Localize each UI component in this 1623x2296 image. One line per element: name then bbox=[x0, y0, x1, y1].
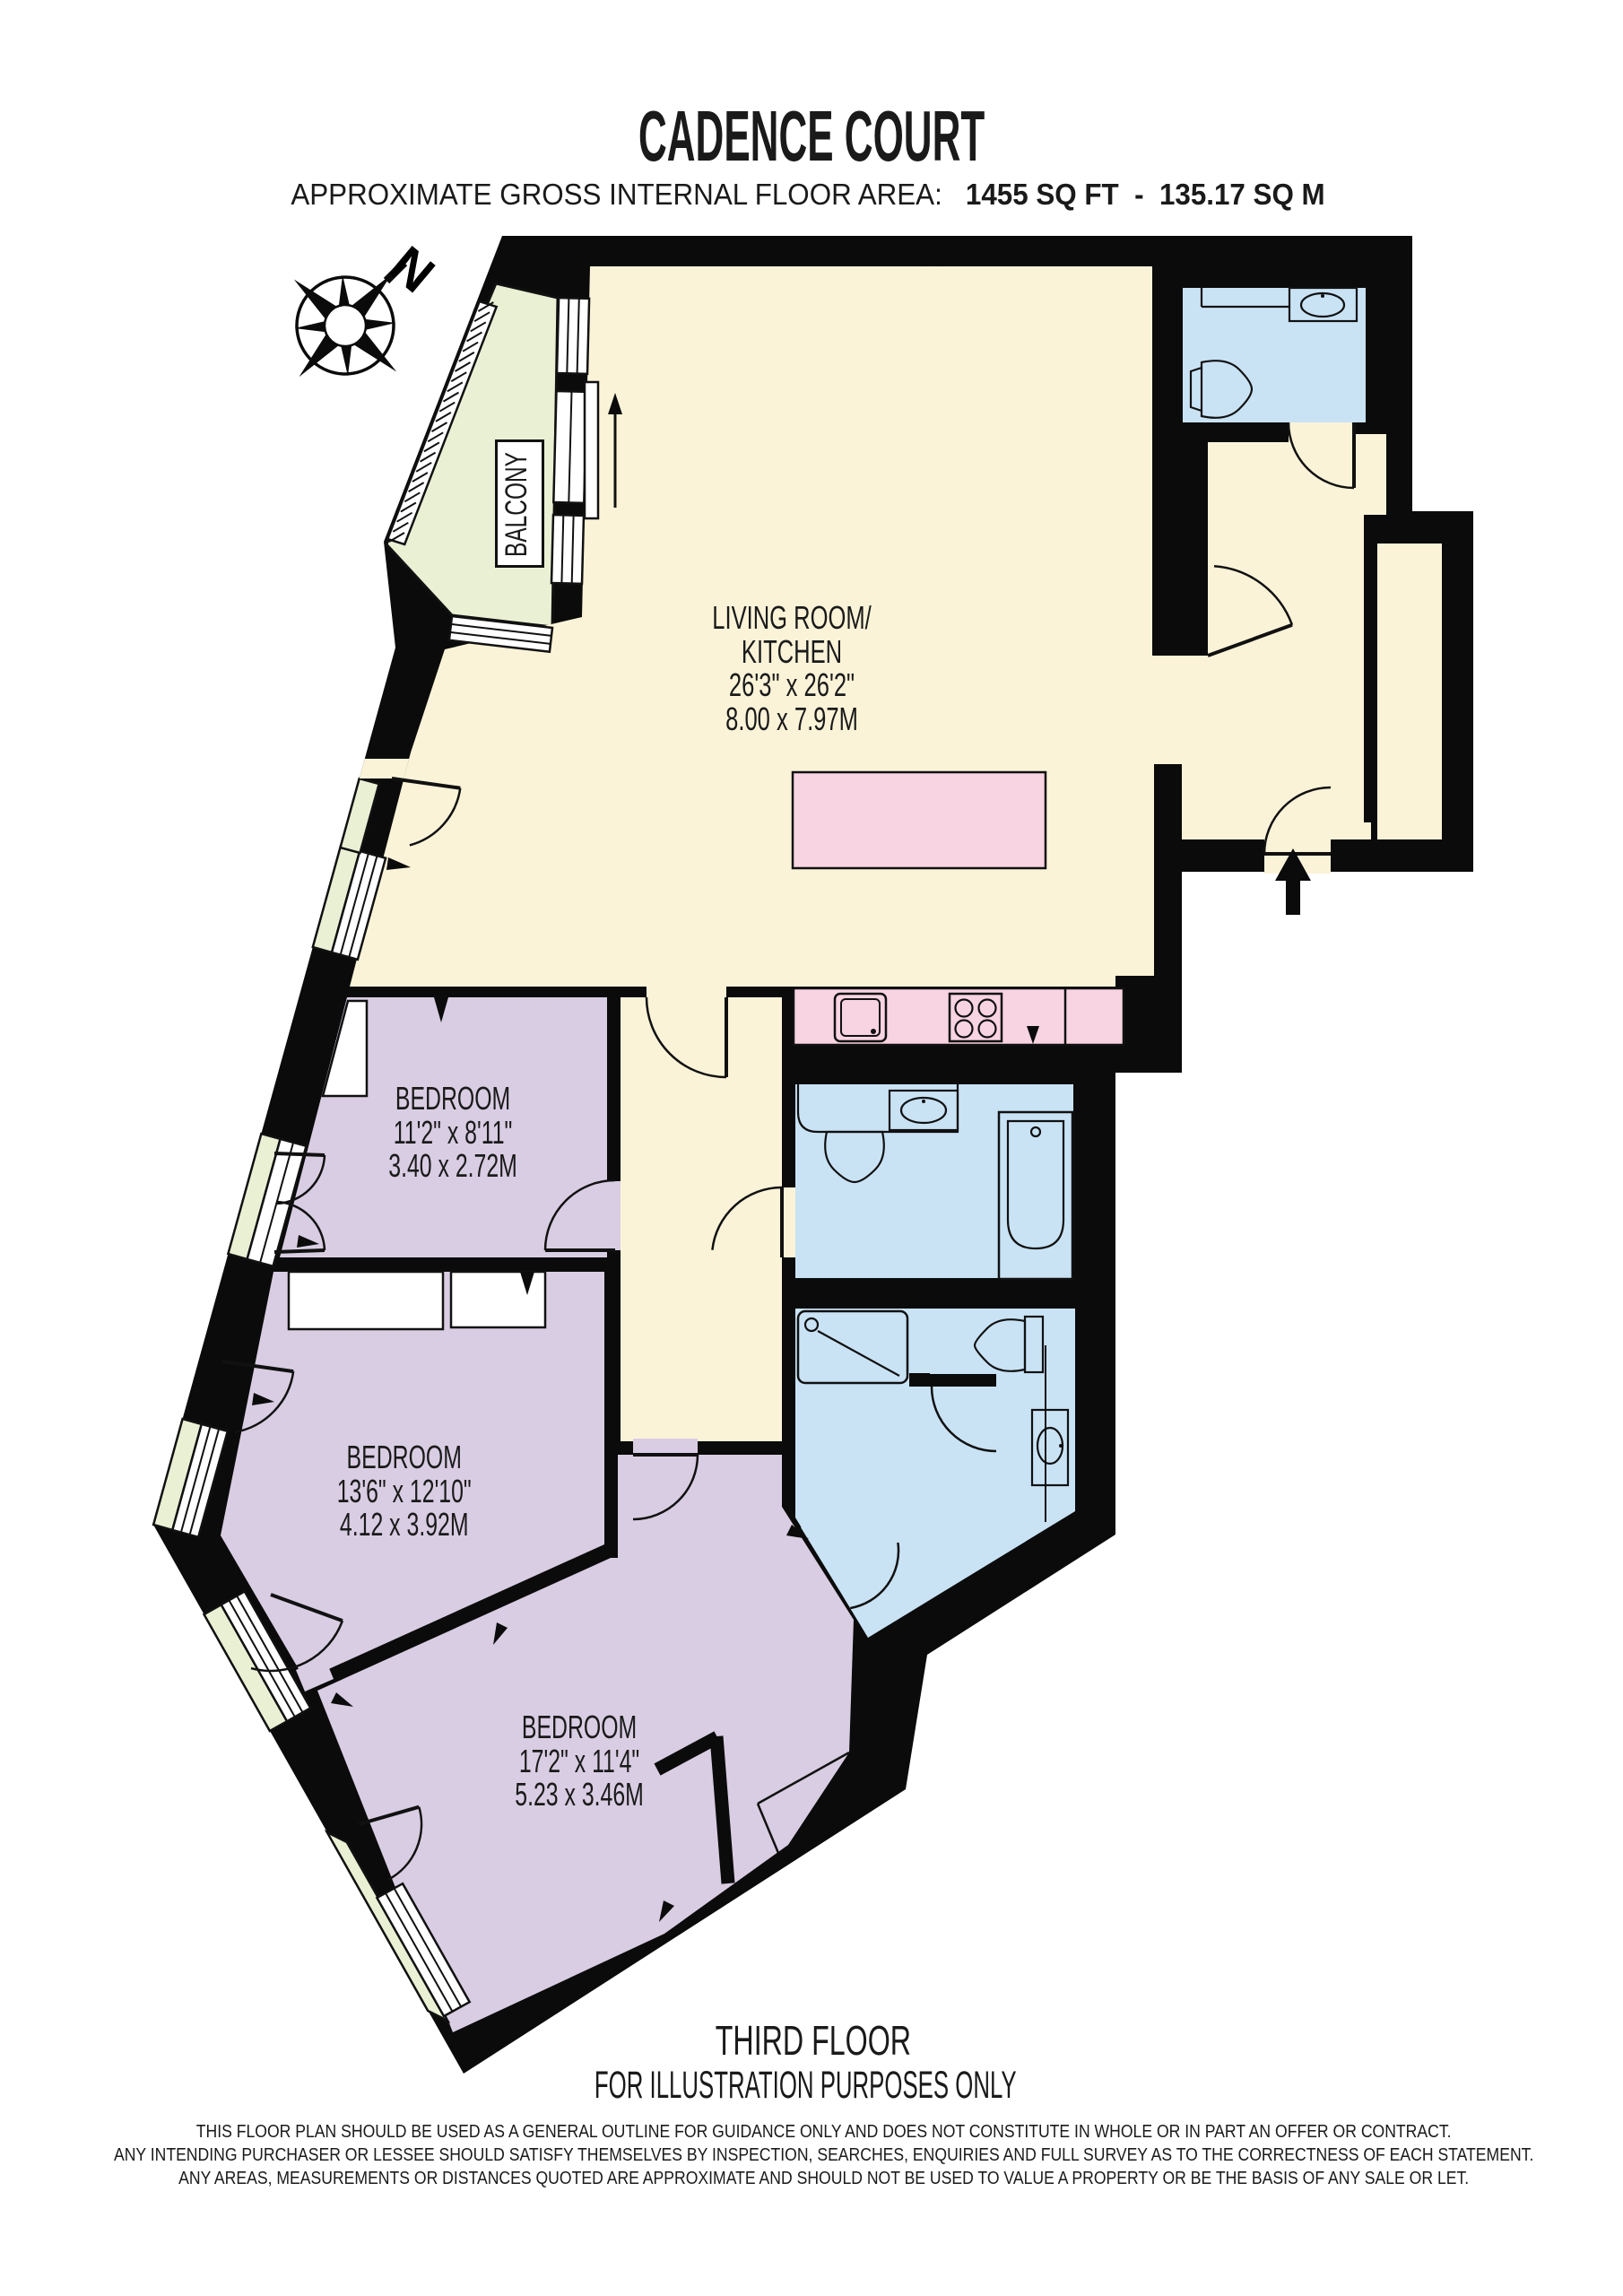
svg-text:N: N bbox=[379, 235, 446, 304]
